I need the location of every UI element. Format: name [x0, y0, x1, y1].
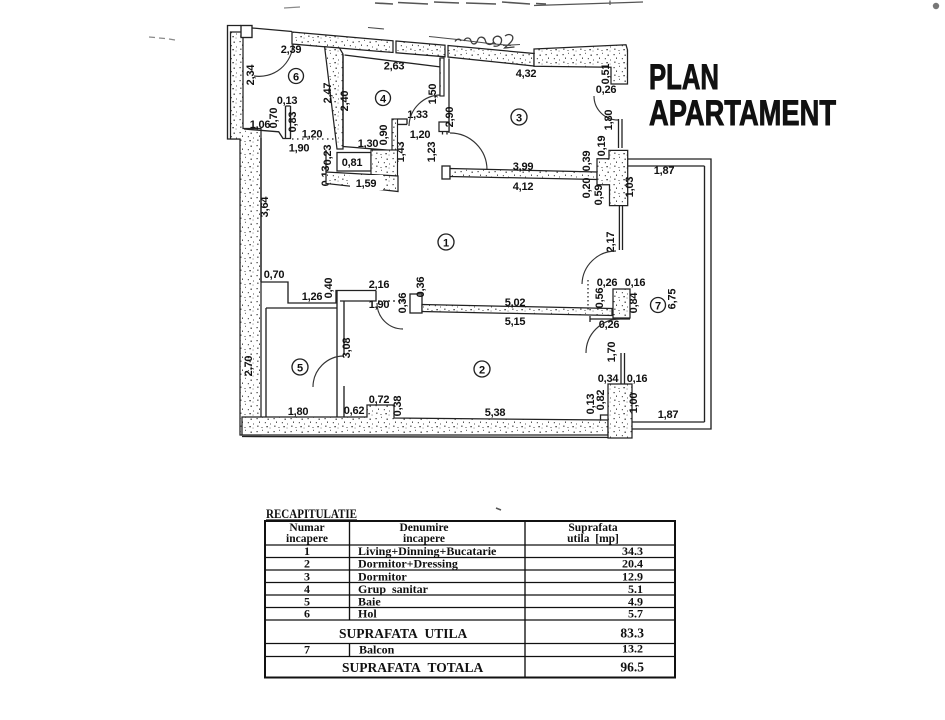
svg-text:1,50: 1,50	[427, 84, 439, 105]
svg-text:0,83: 0,83	[287, 112, 299, 133]
svg-text:Dormitor+Dressing: Dormitor+Dressing	[358, 557, 458, 571]
svg-text:PLAN: PLAN	[649, 58, 719, 97]
svg-text:1,59: 1,59	[356, 178, 377, 190]
svg-text:1,00: 1,00	[628, 393, 640, 414]
svg-text:0,39: 0,39	[581, 151, 593, 172]
svg-text:5,38: 5,38	[485, 407, 506, 419]
svg-text:7: 7	[304, 643, 310, 657]
svg-text:Balcon: Balcon	[359, 643, 395, 657]
svg-text:0,70: 0,70	[268, 108, 280, 129]
svg-text:0,81: 0,81	[342, 157, 363, 169]
svg-text:6: 6	[293, 72, 299, 84]
svg-text:1,26: 1,26	[302, 291, 323, 303]
svg-text:2,47: 2,47	[322, 83, 334, 104]
svg-text:1,23: 1,23	[426, 142, 438, 163]
svg-text:6: 6	[304, 607, 310, 621]
svg-text:utila [mp]: utila [mp]	[567, 533, 619, 545]
svg-text:5,02: 5,02	[505, 297, 526, 309]
svg-text:0,23: 0,23	[322, 145, 334, 166]
svg-text:1: 1	[443, 238, 449, 250]
svg-text:1,70: 1,70	[606, 342, 618, 363]
svg-text:96.5: 96.5	[620, 660, 644, 675]
svg-text:0,56: 0,56	[594, 288, 606, 309]
svg-text:0,62: 0,62	[344, 405, 365, 417]
svg-text:1,90: 1,90	[289, 143, 310, 155]
svg-text:2: 2	[479, 365, 485, 377]
svg-text:1,20: 1,20	[410, 129, 431, 141]
svg-text:2: 2	[304, 557, 310, 571]
svg-text:1,03: 1,03	[624, 177, 636, 198]
svg-text:2,40: 2,40	[339, 91, 351, 112]
svg-text:6,75: 6,75	[667, 289, 679, 310]
svg-text:Hol: Hol	[358, 607, 377, 621]
svg-text:0,20: 0,20	[581, 178, 593, 199]
svg-text:3,08: 3,08	[341, 338, 353, 359]
svg-text:83.3: 83.3	[620, 626, 644, 641]
svg-text:5: 5	[297, 363, 303, 375]
svg-text:5.7: 5.7	[628, 607, 643, 621]
svg-text:1,87: 1,87	[658, 409, 679, 421]
svg-text:4,32: 4,32	[516, 68, 537, 80]
svg-text:1,80: 1,80	[288, 406, 309, 418]
svg-text:0,90: 0,90	[378, 125, 390, 146]
svg-text:4: 4	[380, 94, 387, 106]
svg-text:0,59: 0,59	[593, 185, 605, 206]
svg-text:SUPRAFATA UTILA: SUPRAFATA UTILA	[339, 626, 468, 641]
svg-text:0,40: 0,40	[323, 278, 335, 299]
svg-text:3,99: 3,99	[513, 161, 534, 173]
svg-text:1,87: 1,87	[654, 165, 675, 177]
svg-text:0,16: 0,16	[627, 373, 648, 385]
svg-text:0,26: 0,26	[596, 84, 617, 96]
svg-text:0,36: 0,36	[397, 293, 409, 314]
svg-text:0,13: 0,13	[277, 95, 298, 107]
svg-text:1,80: 1,80	[603, 110, 615, 131]
svg-text:0,70: 0,70	[264, 269, 285, 281]
svg-text:APARTAMENT: APARTAMENT	[649, 94, 836, 133]
svg-text:4,12: 4,12	[513, 181, 534, 193]
svg-text:0,36: 0,36	[415, 277, 427, 298]
svg-text:RECAPITULATIE: RECAPITULATIE	[266, 506, 357, 521]
svg-text:2,63: 2,63	[384, 61, 405, 73]
svg-text:2,34: 2,34	[245, 64, 257, 86]
svg-text:0,34: 0,34	[598, 373, 620, 385]
svg-text:5,15: 5,15	[505, 316, 526, 328]
svg-text:20.4: 20.4	[622, 557, 643, 571]
svg-text:2,39: 2,39	[281, 44, 302, 56]
svg-text:0,19: 0,19	[596, 136, 608, 157]
svg-text:2,17: 2,17	[605, 232, 617, 253]
svg-text:2,90: 2,90	[444, 107, 456, 128]
svg-text:0,26: 0,26	[597, 277, 618, 289]
svg-text:7: 7	[655, 301, 661, 313]
svg-text:SUPRAFATA TOTALA: SUPRAFATA TOTALA	[342, 660, 484, 675]
svg-text:0,51: 0,51	[600, 64, 612, 85]
svg-text:2,70: 2,70	[243, 356, 255, 377]
svg-text:0,13: 0,13	[585, 394, 597, 415]
svg-text:2,16: 2,16	[369, 279, 390, 291]
svg-text:13.2: 13.2	[622, 642, 643, 656]
svg-text:0,16: 0,16	[625, 277, 646, 289]
svg-text:0,72: 0,72	[369, 394, 390, 406]
svg-text:3: 3	[516, 113, 522, 125]
